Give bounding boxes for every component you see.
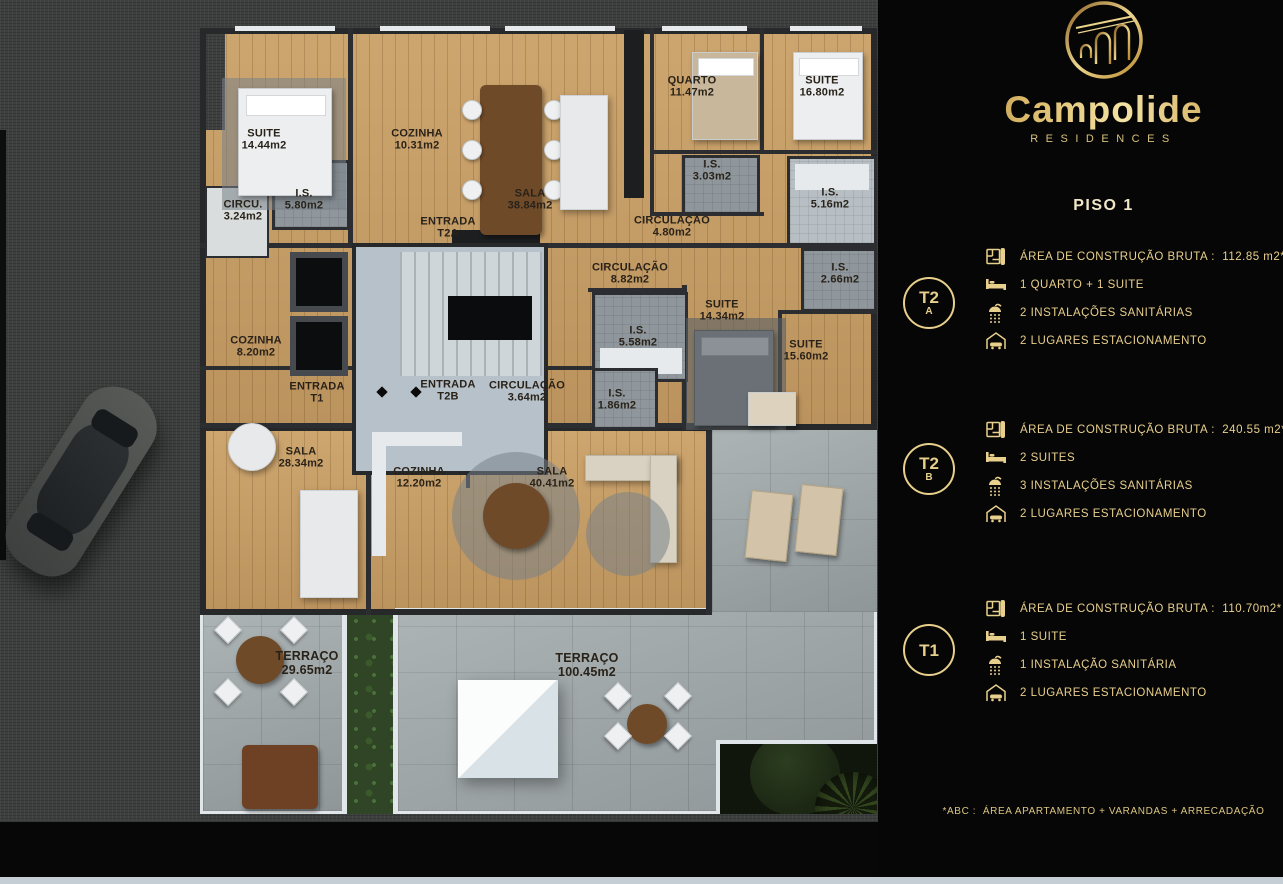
unit-card-t1: T1 ÁREA DE CONSTRUÇÃO BRUTA : 110.70m2* … [901, 590, 1283, 730]
elevator-1 [290, 252, 348, 312]
unit-badge-t1: T1 [903, 624, 955, 676]
spec-text: ÁREA DE CONSTRUÇÃO BRUTA : 110.70m2* [1020, 603, 1282, 615]
terrace-long-table [242, 745, 318, 809]
room-label-entrada-t2a: ENTRADAT2A [420, 216, 475, 241]
wall [760, 28, 764, 154]
spec-text: 2 SUITES [1020, 452, 1075, 464]
shower-icon [984, 474, 1008, 498]
unit-badge-t2a: T2 A [903, 277, 955, 329]
spec-text: 1 SUITE [1020, 631, 1067, 643]
brand-logo-icon [1048, 0, 1160, 80]
spec-row-parking: 2 LUGARES ESTACIONAMENTO [984, 331, 1283, 350]
spec-row-bedrooms: 1 QUARTO + 1 SUITE [984, 275, 1283, 294]
spec-row-bathrooms: 3 INSTALAÇÕES SANITÁRIAS [984, 476, 1283, 495]
garage-car-icon [984, 502, 1008, 526]
floor-title: PISO 1 [901, 197, 1283, 215]
spec-text: 2 INSTALAÇÕES SANITÁRIAS [1020, 307, 1193, 319]
room-label-cozinha-820: COZINHA8.20m2 [230, 335, 282, 360]
hedge [345, 612, 395, 814]
brand-name: Campolide [901, 89, 1283, 131]
wall [706, 430, 712, 615]
badge-sublabel: A [925, 306, 932, 317]
room-label-is-558: I.S.5.58m2 [619, 325, 658, 350]
unit-badge-t2b: T2 B [903, 443, 955, 495]
terrace-arm [712, 430, 877, 612]
sofa-sala-3884 [560, 95, 608, 210]
rug-round [586, 492, 670, 576]
room-label-sala-4041: SALA40.41m2 [530, 466, 575, 491]
terrace-dining-table [627, 704, 667, 744]
garden [716, 740, 877, 814]
room-label-circulacao-364: CIRCULAÇÃO3.64m2 [489, 380, 565, 405]
brand-block: Campolide RESIDENCES [901, 0, 1283, 145]
badge-label: T1 [919, 642, 939, 659]
window-strip [505, 26, 615, 31]
room-label-entrada-t1: ENTRADAT1 [289, 381, 344, 406]
info-panel: Campolide RESIDENCES PISO 1 T2 A ÁREA DE… [878, 0, 1283, 884]
room-label-is-266: I.S.2.66m2 [821, 262, 860, 287]
wall [650, 150, 877, 154]
media-wall [624, 30, 644, 198]
spec-text: 2 LUGARES ESTACIONAMENTO [1020, 335, 1207, 347]
brand-tagline: RESIDENCES [901, 133, 1283, 145]
sun-lounger [745, 490, 794, 562]
badge-label: T2 [919, 455, 939, 472]
spec-text: 3 INSTALAÇÕES SANITÁRIAS [1020, 480, 1193, 492]
spec-row-bathrooms: 1 INSTALAÇÃO SANITÁRIA [984, 655, 1282, 674]
bed-suite-1560 [748, 392, 796, 426]
spec-row-bathrooms: 2 INSTALAÇÕES SANITÁRIAS [984, 303, 1283, 322]
badge-label: T2 [919, 289, 939, 306]
floor-plan-render: SUITE14.44m2 COZINHA10.31m2 I.S.5.80m2 C… [0, 0, 878, 884]
unit-card-t2b: T2 B ÁREA DE CONSTRUÇÃO BRUTA : 240.55 m… [901, 411, 1283, 551]
bed-icon [984, 273, 1008, 297]
spec-row-parking: 2 LUGARES ESTACIONAMENTO [984, 504, 1283, 523]
spec-text: ÁREA DE CONSTRUÇÃO BRUTA : 240.55 m2* [1020, 424, 1283, 436]
room-label-suite-1434: SUITE14.34m2 [700, 299, 745, 324]
bottom-edge-bar [0, 877, 1283, 884]
kitchen-counter [372, 446, 386, 556]
dining-table-t2b [483, 483, 549, 549]
room-label-suite-1560: SUITE15.60m2 [784, 339, 829, 364]
page: SUITE14.44m2 COZINHA10.31m2 I.S.5.80m2 C… [0, 0, 1283, 884]
spec-row-parking: 2 LUGARES ESTACIONAMENTO [984, 683, 1282, 702]
room-label-circulacao-480: CIRCULAÇÃO4.80m2 [634, 215, 710, 240]
spec-row-bedrooms: 2 SUITES [984, 448, 1283, 467]
spec-row-bedrooms: 1 SUITE [984, 627, 1282, 646]
room-label-is-580: I.S.5.80m2 [285, 188, 324, 213]
bed-icon [984, 625, 1008, 649]
garage-car-icon [984, 329, 1008, 353]
footnote: *ABC : ÁREA APARTAMENTO + VARANDAS + ARR… [901, 806, 1283, 817]
spec-row-area: ÁREA DE CONSTRUÇÃO BRUTA : 112.85 m2* [984, 247, 1283, 266]
room-label-cozinha-1220: COZINHA12.20m2 [393, 466, 445, 491]
spec-text: 1 INSTALAÇÃO SANITÁRIA [1020, 659, 1177, 671]
badge-sublabel: B [925, 472, 932, 483]
chair [462, 140, 482, 160]
spec-row-area: ÁREA DE CONSTRUÇÃO BRUTA : 240.55 m2* [984, 420, 1283, 439]
spec-text: 1 QUARTO + 1 SUITE [1020, 279, 1144, 291]
spec-text: 2 LUGARES ESTACIONAMENTO [1020, 508, 1207, 520]
kitchen-counter [372, 432, 462, 446]
curb-edge [0, 130, 6, 560]
elevator-2 [290, 316, 348, 376]
room-label-sala-3884: SALA38.84m2 [508, 188, 553, 213]
room-label-is-516: I.S.5.16m2 [811, 187, 850, 212]
room-label-is-186: I.S.1.86m2 [598, 388, 637, 413]
garage-car-icon [984, 681, 1008, 705]
spec-row-area: ÁREA DE CONSTRUÇÃO BRUTA : 110.70m2* [984, 599, 1282, 618]
room-label-is-303: I.S.3.03m2 [693, 159, 732, 184]
window-strip [380, 26, 490, 31]
room-label-sala-2834: SALA28.34m2 [279, 446, 324, 471]
room-label-suite-1680: SUITE16.80m2 [800, 75, 845, 100]
floor-plan-icon [984, 418, 1008, 442]
chair [462, 100, 482, 120]
wall [650, 28, 654, 215]
room-label-circu-324: CIRCU.3.24m2 [223, 199, 262, 224]
room-label-quarto-1147: QUARTO11.47m2 [668, 75, 717, 100]
chair [462, 180, 482, 200]
pergola [458, 680, 558, 778]
bed-icon [984, 446, 1008, 470]
spec-text: ÁREA DE CONSTRUÇÃO BRUTA : 112.85 m2* [1020, 251, 1283, 263]
sun-lounger [795, 484, 844, 556]
window-strip [790, 26, 862, 31]
dining-table-t2a [480, 85, 542, 235]
window-strip [662, 26, 747, 31]
unit-card-t2a: T2 A ÁREA DE CONSTRUÇÃO BRUTA : 112.85 m… [901, 238, 1283, 378]
floor-plan-icon [984, 597, 1008, 621]
sofa-sala-2834 [300, 490, 358, 598]
room-label-circulacao-882: CIRCULAÇÃO8.82m2 [592, 262, 668, 287]
table-sala-2834 [228, 423, 276, 471]
room-label-suite-1444: SUITE14.44m2 [242, 128, 287, 153]
shower-icon [984, 653, 1008, 677]
room-label-cozinha-1031: COZINHA10.31m2 [391, 128, 443, 153]
stair-void [448, 296, 532, 340]
room-label-terraco-10045: TERRAÇO100.45m2 [555, 651, 618, 679]
room-label-entrada-t2b: ENTRADAT2B [420, 379, 475, 404]
floor-plan-icon [984, 245, 1008, 269]
window-strip [235, 26, 335, 31]
spec-text: 2 LUGARES ESTACIONAMENTO [1020, 687, 1207, 699]
shower-icon [984, 301, 1008, 325]
room-label-terraco-2965: TERRAÇO29.65m2 [275, 649, 338, 677]
